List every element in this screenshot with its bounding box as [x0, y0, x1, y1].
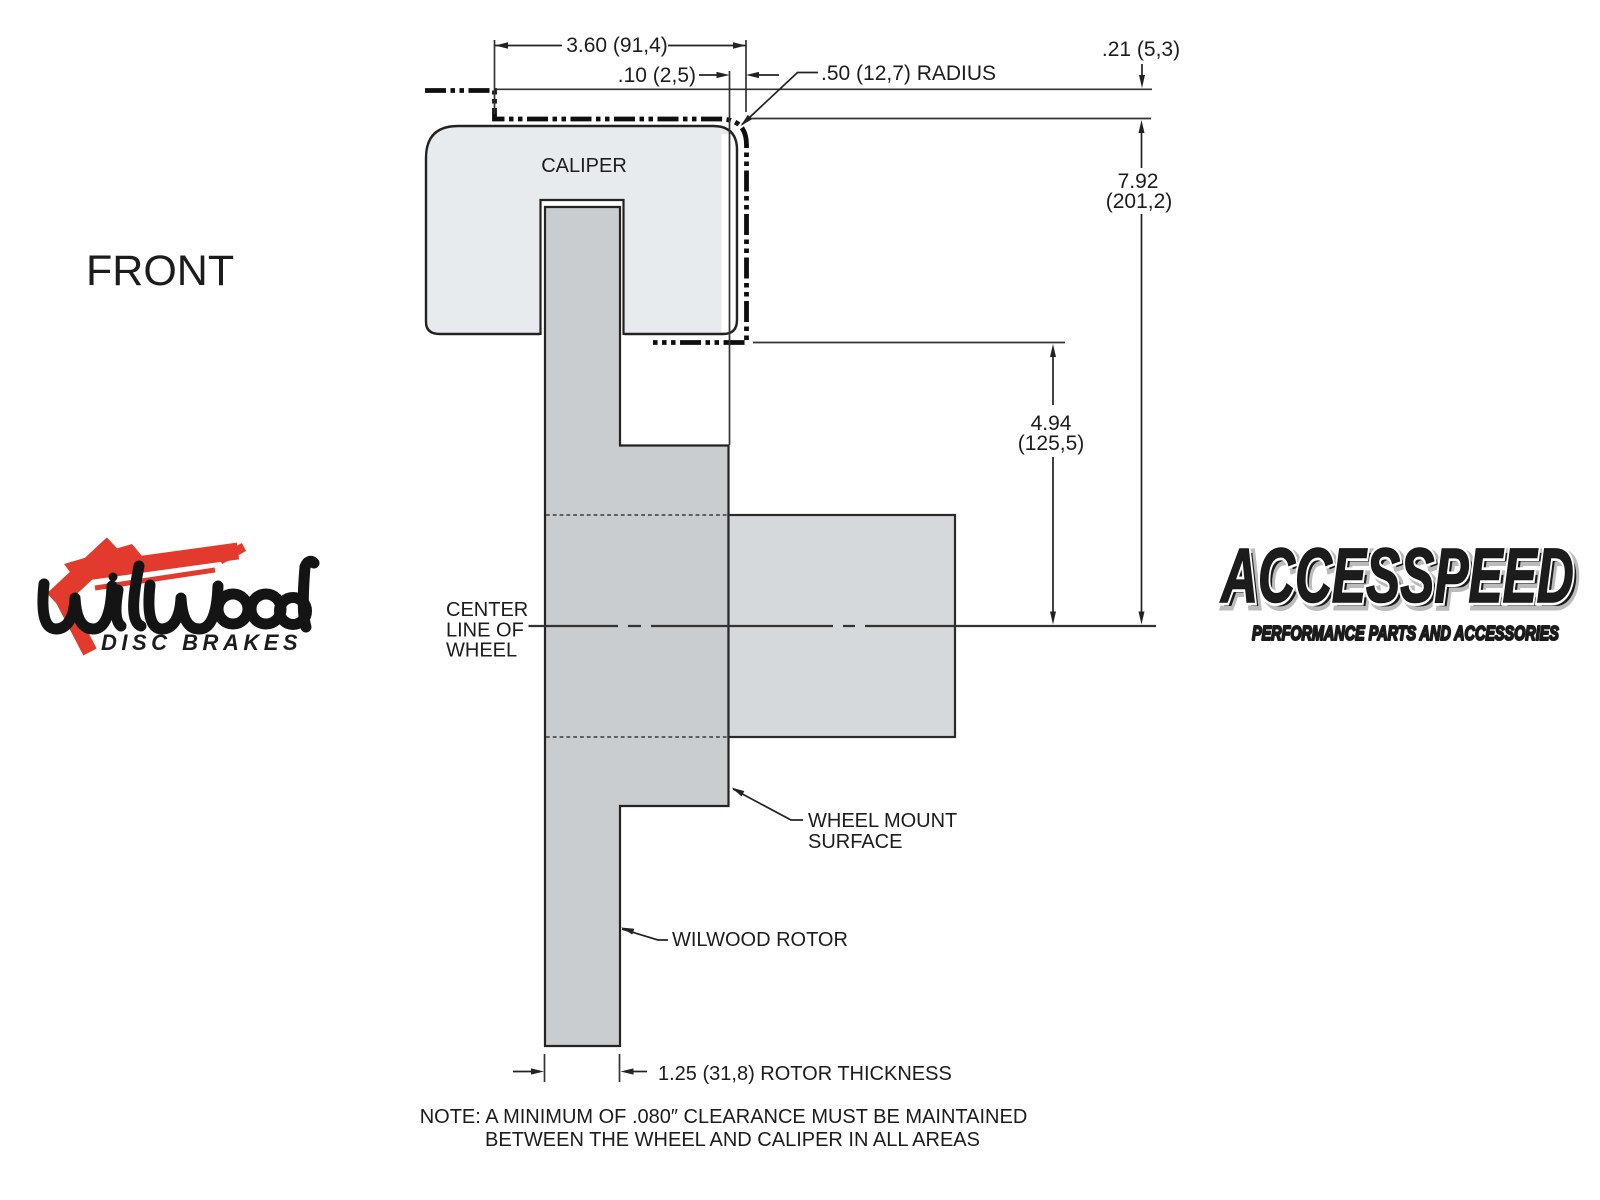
svg-text:WHEEL: WHEEL [446, 640, 517, 662]
svg-text:NOTE: A MINIMUM OF .080″ CLEAR: NOTE: A MINIMUM OF .080″ CLEARANCE MUST … [420, 1106, 1028, 1128]
svg-text:ACCESSPEED: ACCESSPEED [1219, 533, 1573, 619]
svg-text:FRONT: FRONT [86, 247, 234, 295]
svg-text:(125,5): (125,5) [1018, 432, 1085, 455]
svg-text:PERFORMANCE PARTS AND ACCESSOR: PERFORMANCE PARTS AND ACCESSORIES [1252, 622, 1559, 645]
svg-text:CALIPER: CALIPER [541, 155, 627, 177]
svg-text:.10 (2,5): .10 (2,5) [618, 64, 696, 87]
svg-text:CENTER: CENTER [446, 599, 528, 621]
svg-text:WILWOOD ROTOR: WILWOOD ROTOR [672, 929, 848, 951]
svg-text:3.60 (91,4): 3.60 (91,4) [566, 34, 668, 57]
svg-text:BETWEEN THE WHEEL AND CALIPER: BETWEEN THE WHEEL AND CALIPER IN ALL ARE… [485, 1129, 980, 1151]
svg-text:WHEEL MOUNT: WHEEL MOUNT [808, 810, 957, 832]
svg-text:.21 (5,3): .21 (5,3) [1102, 38, 1180, 61]
svg-text:SURFACE: SURFACE [808, 831, 902, 853]
svg-text:1.25 (31,8) ROTOR THICKNESS: 1.25 (31,8) ROTOR THICKNESS [658, 1063, 952, 1085]
svg-text:DISC BRAKES: DISC BRAKES [101, 630, 302, 655]
svg-text:.50 (12,7) RADIUS: .50 (12,7) RADIUS [821, 62, 996, 85]
svg-text:LINE OF: LINE OF [446, 620, 524, 642]
svg-text:(201,2): (201,2) [1106, 190, 1173, 213]
